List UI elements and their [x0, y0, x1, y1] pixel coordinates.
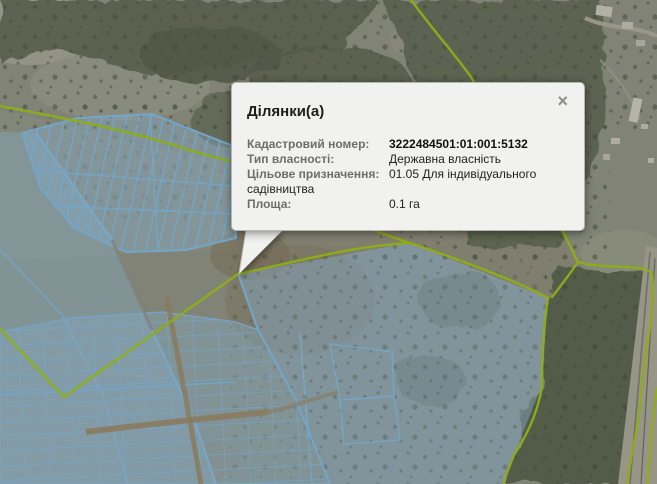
map-canvas[interactable] [0, 0, 657, 484]
info-row-area: Площа:0.1 га [247, 197, 569, 212]
field-label: Цільове призначення: [247, 167, 389, 182]
info-row-ownership-type: Тип власності:Державна власність [247, 152, 569, 167]
info-row-cadastral-number: Кадастровий номер:3222484501:01:001:5132 [247, 137, 569, 152]
field-label: Кадастровий номер: [247, 137, 389, 152]
field-value: 0.1 га [389, 197, 420, 211]
parcel-info-popup: × Ділянки(а) Кадастровий номер:322248450… [231, 82, 585, 231]
field-label: Тип власності: [247, 152, 389, 167]
map-viewport: × Ділянки(а) Кадастровий номер:322248450… [0, 0, 657, 484]
aerial-grain-texture [0, 0, 657, 484]
info-row-purpose: Цільове призначення:01.05 Для індивідуал… [247, 167, 569, 197]
field-value: 3222484501:01:001:5132 [389, 137, 528, 151]
close-icon[interactable]: × [557, 94, 568, 108]
popup-fields: Кадастровий номер:3222484501:01:001:5132… [247, 137, 569, 212]
field-label: Площа: [247, 197, 389, 212]
popup-callout-tail [235, 230, 295, 276]
popup-title: Ділянки(а) [247, 103, 569, 121]
field-value: Державна власність [389, 152, 501, 166]
